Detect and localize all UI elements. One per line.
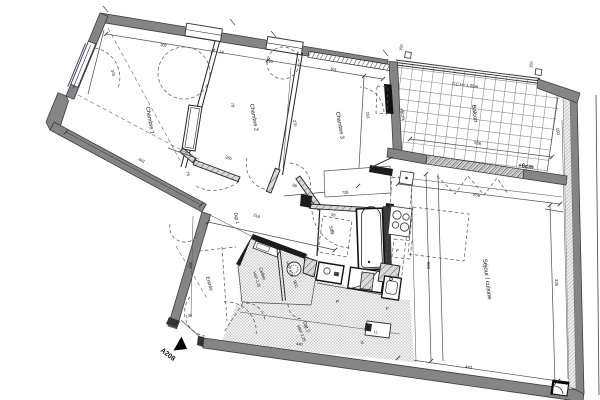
svg-text:443: 443: [465, 364, 473, 370]
svg-text:556: 556: [473, 192, 481, 198]
svg-text:304: 304: [188, 262, 194, 270]
svg-text:150: 150: [399, 44, 404, 51]
svg-text:563: 563: [426, 262, 431, 270]
svg-text:150: 150: [529, 61, 534, 68]
svg-text:335: 335: [554, 279, 559, 287]
svg-text:LL: LL: [374, 330, 379, 335]
svg-text:F: F: [386, 306, 389, 311]
svg-text:556: 556: [474, 140, 482, 146]
svg-text:P: P: [336, 299, 339, 304]
svg-text:728: 728: [342, 189, 350, 195]
